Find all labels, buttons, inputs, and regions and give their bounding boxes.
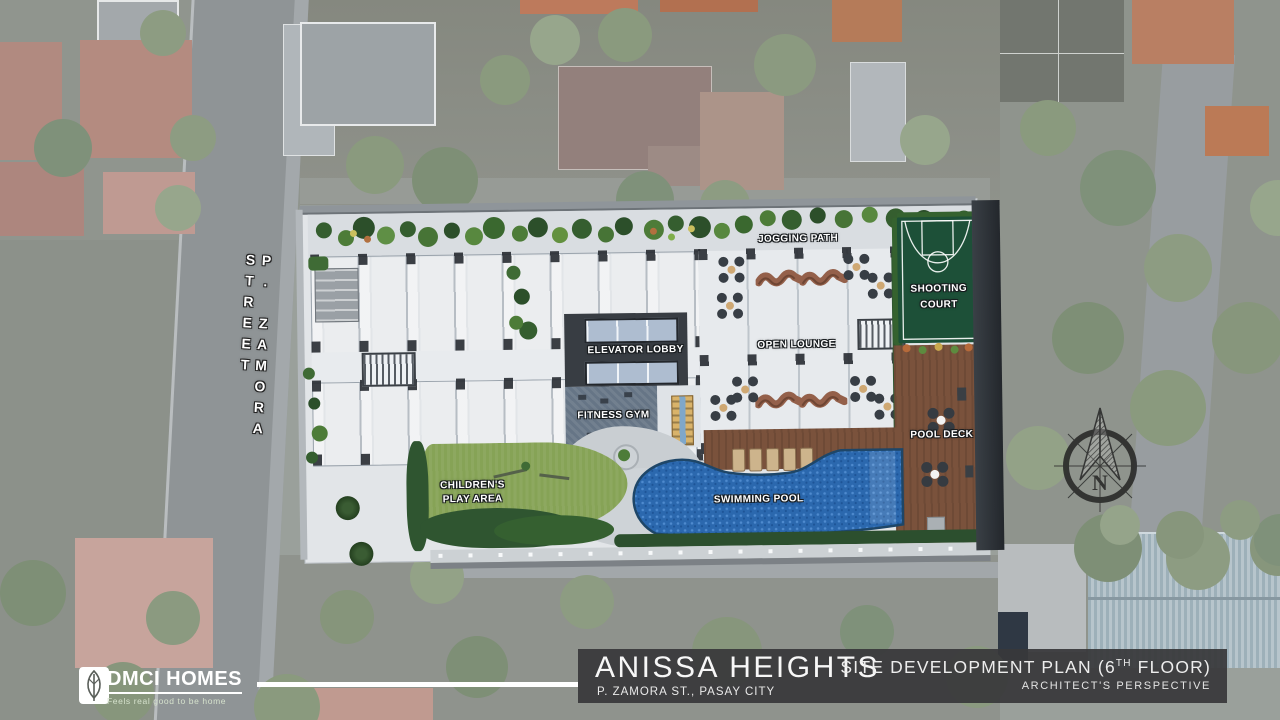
project-name: ANISSA HEIGHTS: [595, 651, 880, 685]
plan-title-ordinal: TH: [1116, 658, 1132, 669]
plan-subtitle: ARCHITECT'S PERSPECTIVE: [1022, 680, 1211, 692]
dmci-logo-icon: [78, 666, 110, 705]
brand-name: DMCI HOMES: [107, 668, 242, 694]
swimming-pool: [619, 434, 912, 546]
lounge-seating-cluster: [859, 385, 867, 393]
label-pool-deck: POOL DECK: [910, 429, 973, 441]
title-bar: ANISSA HEIGHTS P. ZAMORA ST., PASAY CITY…: [578, 649, 1227, 703]
plan-title: SITE DEVELOPMENT PLAN (6TH FLOOR): [840, 657, 1211, 678]
plan-title-suffix: FLOOR): [1132, 657, 1211, 677]
shooting-court: [897, 216, 980, 343]
brand-tagline: Feels real good to be home: [107, 696, 242, 706]
lounge-seating-cluster: [719, 404, 727, 412]
lounge-seating-cluster: [852, 263, 860, 271]
deck-seating-cluster: [930, 470, 939, 479]
plan-title-prefix: SITE DEVELOPMENT PLAN (6: [840, 657, 1116, 677]
entry-steps: [314, 268, 359, 323]
deck-planter-box: [957, 387, 966, 400]
site-development-plan-image: JOGGING PATH SHOOTING COURT ELEVATOR LOB…: [0, 0, 1280, 720]
entry-planter: [308, 256, 328, 270]
lounge-seating-cluster: [726, 302, 734, 310]
lounge-seating-cluster: [727, 266, 735, 274]
north-compass-icon: N: [1052, 404, 1148, 516]
deck-planter-box: [965, 465, 973, 477]
deck-seating-cluster: [937, 416, 946, 425]
label-shooting-court-line1: SHOOTING: [910, 283, 967, 295]
property-site: JOGGING PATH SHOOTING COURT ELEVATOR LOB…: [0, 0, 1280, 720]
lounge-seating-cluster: [883, 402, 891, 410]
wavy-bench: [755, 390, 803, 413]
planter-row: [903, 344, 911, 352]
brand-block: DMCI HOMES Feels real good to be home: [107, 668, 242, 706]
project-address: P. ZAMORA ST., PASAY CITY: [597, 686, 775, 698]
label-fitness-gym: FITNESS GYM: [577, 409, 649, 421]
jogging-path-trees: [316, 222, 332, 238]
elevator-lobby-skylight: [584, 317, 678, 343]
west-staircase: [362, 352, 416, 387]
footer-divider-line: [257, 682, 578, 687]
wavy-bench: [799, 267, 847, 290]
label-play-area-line1: CHILDREN'S: [440, 479, 505, 491]
gym-equipment: [578, 395, 586, 400]
play-shrub: [521, 462, 530, 471]
compass-north-letter: N: [1092, 470, 1108, 495]
label-swimming-pool: SWIMMING POOL: [714, 493, 804, 505]
label-open-lounge: OPEN LOUNGE: [757, 339, 835, 351]
west-shrubs: [303, 368, 315, 380]
wavy-bench: [799, 389, 847, 412]
elevator-lobby-skylight: [585, 360, 679, 385]
label-shooting-court-line2: COURT: [920, 299, 958, 311]
lounge-seating-cluster: [877, 282, 885, 290]
label-elevator-lobby: ELEVATOR LOBBY: [587, 344, 683, 356]
site-wall-right: [972, 200, 1005, 550]
label-jogging-path: JOGGING PATH: [758, 233, 838, 245]
label-play-area-line2: PLAY AREA: [443, 493, 503, 505]
flower-shrubs: [350, 230, 357, 237]
lounge-seating-cluster: [741, 385, 749, 393]
wavy-bench: [755, 268, 803, 291]
